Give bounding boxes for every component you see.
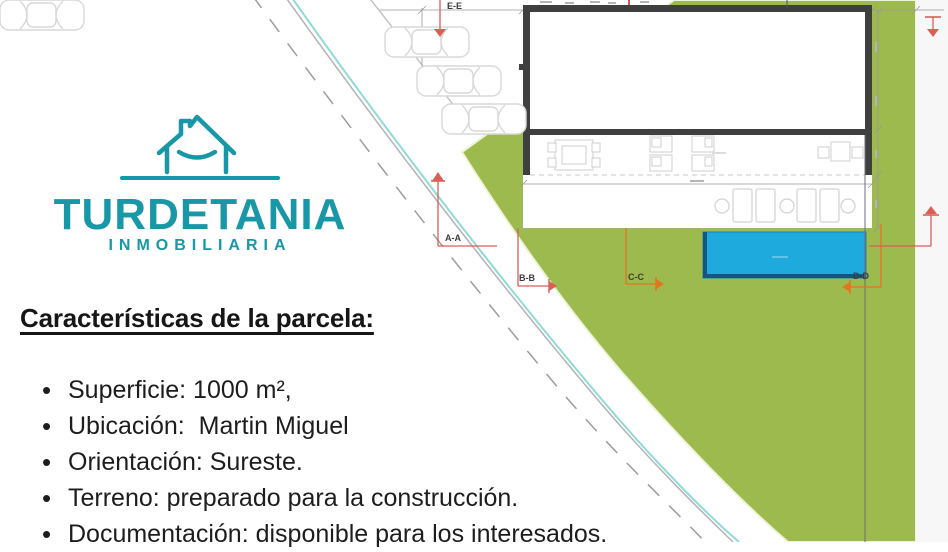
wall-top [523, 5, 872, 12]
right-margin-strip [916, 0, 948, 542]
brand-tagline: INMOBILIARIA [0, 237, 400, 255]
building-footprint [519, 0, 872, 228]
feature-item-documentacion: Documentación: disponible para los inter… [42, 516, 682, 552]
feature-item-terreno: Terreno: preparado para la construcción. [42, 480, 682, 516]
pool [703, 232, 866, 278]
section-label-ee: E-E [447, 1, 462, 11]
section-label-dd: D-D [853, 271, 869, 281]
wall-left [523, 5, 530, 175]
features-heading: Características de la parcela: [20, 303, 374, 334]
feature-item-superficie: Superficie: 1000 m², [42, 372, 682, 408]
features-list: Superficie: 1000 m², Ubicación: Martin M… [42, 372, 682, 552]
section-label-aa: A-A [445, 233, 461, 243]
feature-item-orientacion: Orientación: Sureste. [42, 444, 682, 480]
wall-bottom [523, 129, 872, 135]
house-icon [118, 110, 282, 184]
parked-car [0, 0, 84, 30]
brand-name: TURDETANIA [0, 190, 400, 240]
wall-right [865, 5, 872, 175]
section-label-bb: B-B [519, 273, 535, 283]
feature-item-ubicacion: Ubicación: Martin Miguel [42, 408, 682, 444]
section-label-cc: C-C [628, 272, 644, 282]
